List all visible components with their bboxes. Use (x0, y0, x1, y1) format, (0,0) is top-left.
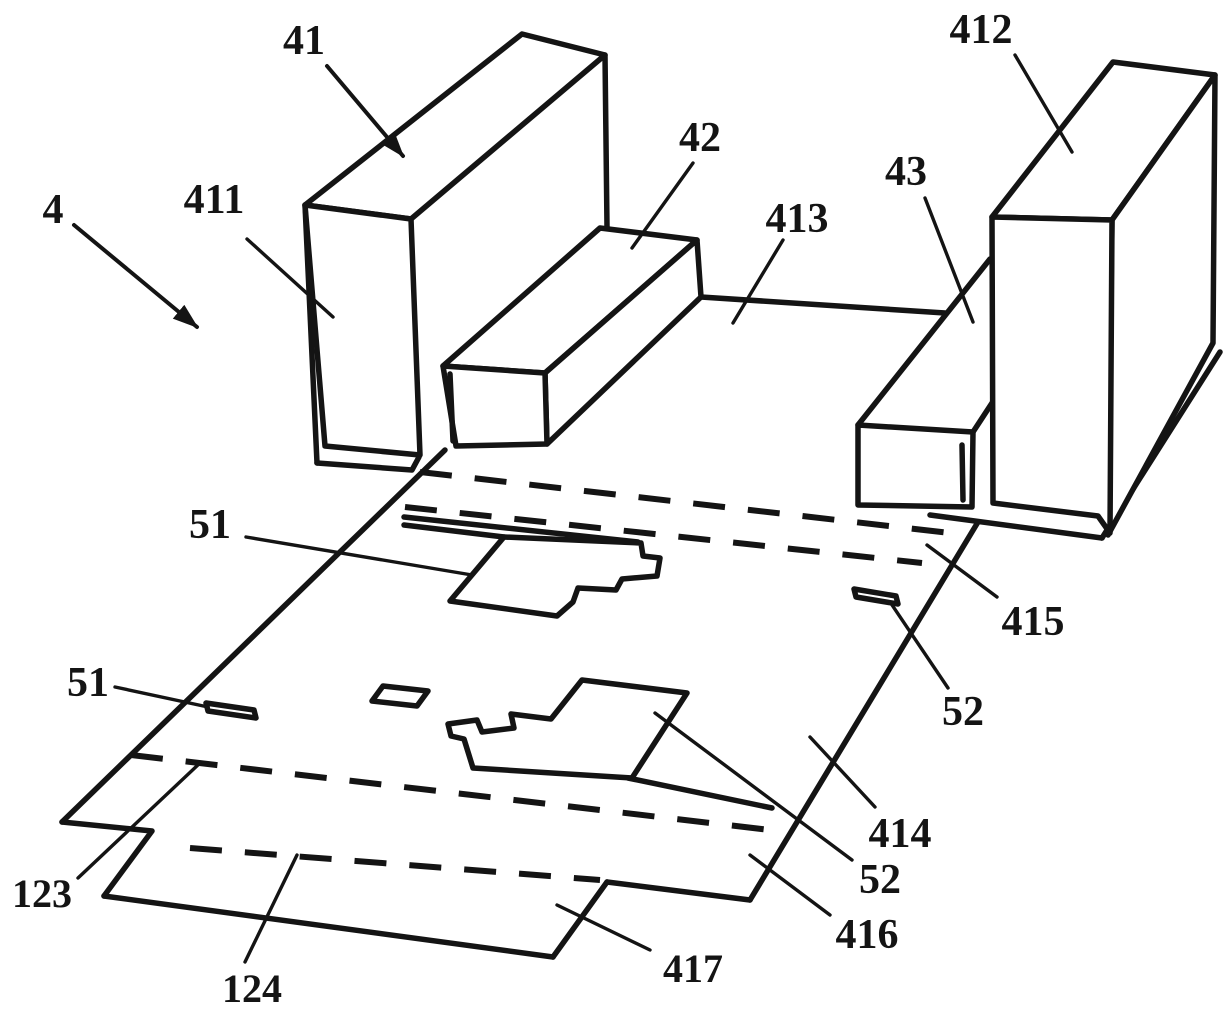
plate-bottom-left-step (62, 822, 152, 896)
left-wall-top-face (305, 34, 605, 219)
cutout-51 (450, 537, 660, 616)
ref-label-51-upper: 51 (189, 502, 231, 548)
slot-center (372, 686, 428, 706)
left-wall-back-edge (605, 55, 607, 227)
ref-label-52-upper: 52 (942, 689, 984, 735)
right-wall-front-face (992, 217, 1112, 533)
leader-124 (245, 855, 297, 962)
ref-label-51-lower: 51 (67, 660, 109, 706)
figure-page: 4 41 411 42 413 412 43 51 51 415 52 414 … (0, 0, 1228, 1016)
ref-label-43: 43 (885, 149, 927, 195)
leader-413 (733, 240, 783, 323)
rail-43-inner-edge (962, 445, 963, 500)
ref-label-52-lower: 52 (859, 857, 901, 903)
ref-label-42: 42 (679, 115, 721, 161)
leader-123 (78, 763, 200, 878)
rail-43-front-face (858, 425, 973, 507)
ref-label-415: 415 (1002, 599, 1065, 645)
rail-42-end-cap-inner-edge (450, 374, 453, 441)
cutout-52 (448, 680, 687, 778)
plate-bottom-edge-right (607, 882, 750, 900)
ref-label-124: 124 (222, 966, 282, 1011)
ref-label-414: 414 (869, 811, 932, 857)
rail-42-end-cap (443, 366, 547, 446)
leader-52-lower (655, 713, 852, 860)
plate-bottom-edge (104, 896, 553, 957)
plate-left-edge (62, 450, 445, 822)
fold-line-124 (190, 848, 600, 880)
ref-label-411: 411 (184, 177, 245, 223)
ref-label-413: 413 (766, 196, 829, 242)
patent-figure-canvas: 4 41 411 42 413 412 43 51 51 415 52 414 … (0, 0, 1228, 1016)
leader-43 (925, 198, 973, 322)
ref-label-412: 412 (950, 7, 1013, 53)
plate-bottom-step-up (553, 882, 607, 957)
leader-412 (1015, 55, 1072, 152)
plate-edge-under-right-wall (930, 515, 1102, 538)
rail-43-top-right-edge (973, 403, 992, 432)
left-wall-front-face (305, 205, 420, 455)
ref-label-416: 416 (836, 912, 899, 958)
ref-label-123: 123 (12, 871, 72, 916)
ref-label-4: 4 (43, 187, 64, 233)
arrow-4 (74, 225, 197, 327)
ref-label-417: 417 (663, 946, 723, 991)
small-rail-43 (858, 259, 992, 507)
right-wall-412 (992, 62, 1215, 535)
leader-51-upper (246, 537, 472, 575)
rail-43-top-left-edge (858, 259, 990, 425)
reference-numerals: 4 41 411 42 413 412 43 51 51 415 52 414 … (12, 7, 1065, 1011)
fold-line-123 (131, 755, 770, 830)
slot-51-left (206, 703, 256, 718)
ref-label-41: 41 (283, 18, 325, 64)
left-wall-bottom-sliver (317, 457, 419, 470)
center-rail-42 (443, 228, 701, 446)
arrow-41 (327, 66, 403, 156)
plate-top-edge-413 (701, 297, 945, 313)
